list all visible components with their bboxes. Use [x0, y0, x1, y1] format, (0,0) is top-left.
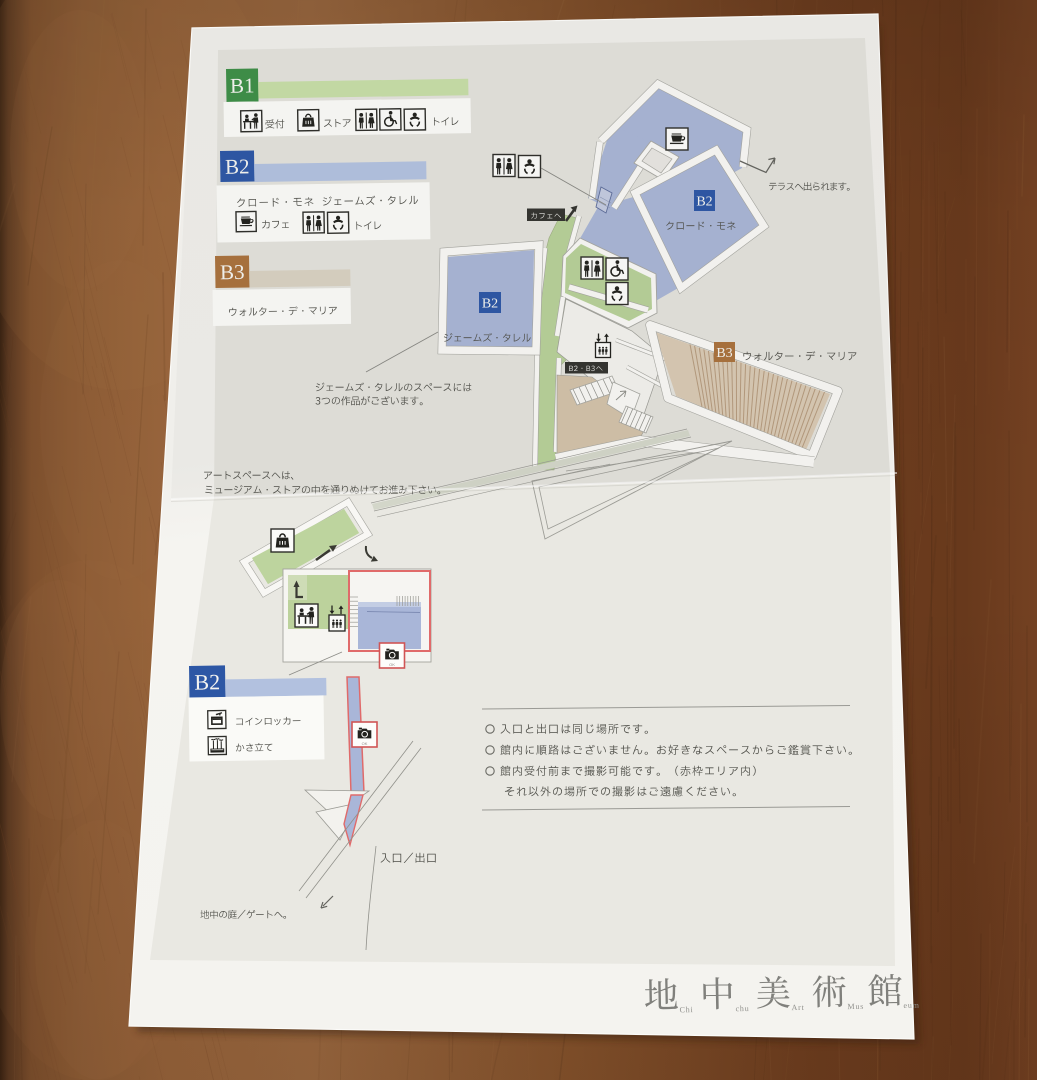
svg-text:chu: chu	[735, 1004, 749, 1013]
svg-text:Art: Art	[791, 1003, 804, 1012]
svg-text:OK: OK	[389, 662, 395, 667]
svg-text:OK: OK	[362, 741, 368, 746]
svg-text:Mus: Mus	[847, 1002, 864, 1011]
svg-text:Chi: Chi	[679, 1005, 693, 1014]
svg-text:B2: B2	[194, 669, 220, 694]
svg-text:eum: eum	[903, 1001, 919, 1010]
